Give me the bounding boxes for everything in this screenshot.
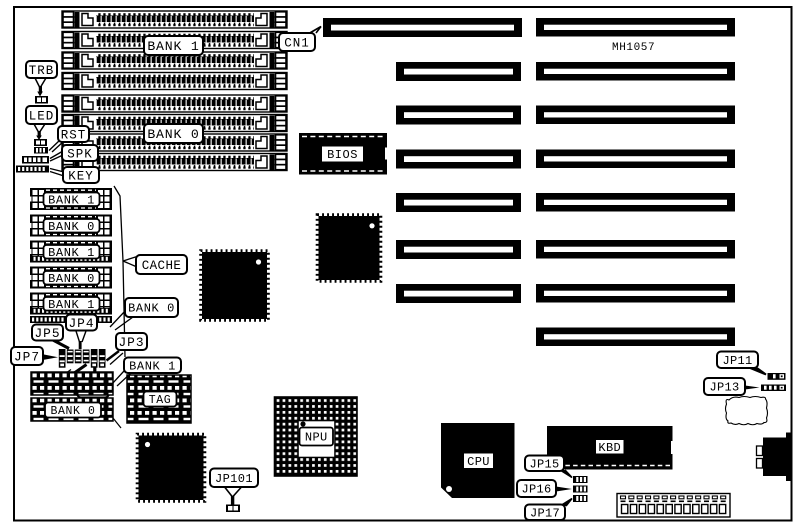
svg-text:CN1: CN1 xyxy=(284,36,310,50)
svg-text:TRB: TRB xyxy=(29,64,55,78)
svg-text:JP17: JP17 xyxy=(530,506,560,520)
svg-text:BANK 1: BANK 1 xyxy=(147,39,199,54)
svg-text:RST: RST xyxy=(61,128,87,142)
svg-text:SPK: SPK xyxy=(67,147,93,161)
svg-text:JP5: JP5 xyxy=(34,326,60,341)
svg-text:JP3: JP3 xyxy=(118,335,144,350)
svg-text:BANK 0: BANK 0 xyxy=(147,127,199,142)
svg-text:JP16: JP16 xyxy=(521,483,551,497)
svg-text:MH1057: MH1057 xyxy=(612,42,655,54)
svg-text:BIOS: BIOS xyxy=(327,148,358,162)
svg-text:NPU: NPU xyxy=(305,431,328,445)
svg-text:BANK 1: BANK 1 xyxy=(48,298,95,312)
svg-text:TAG: TAG xyxy=(149,394,172,407)
svg-text:JP101: JP101 xyxy=(215,472,253,486)
svg-text:LED: LED xyxy=(29,109,55,123)
svg-text:BANK 0: BANK 0 xyxy=(50,405,95,418)
svg-text:CPU: CPU xyxy=(467,455,490,469)
svg-text:JP4: JP4 xyxy=(68,316,94,331)
svg-text:JP15: JP15 xyxy=(529,457,559,471)
svg-text:CACHE: CACHE xyxy=(142,259,182,273)
svg-text:JP13: JP13 xyxy=(709,381,739,395)
svg-text:JP11: JP11 xyxy=(722,354,752,368)
svg-text:BANK 1: BANK 1 xyxy=(48,193,95,207)
svg-text:BANK 0: BANK 0 xyxy=(48,220,95,234)
svg-text:BANK 1: BANK 1 xyxy=(129,359,176,373)
svg-text:BANK 0: BANK 0 xyxy=(48,272,95,286)
svg-text:BANK 0: BANK 0 xyxy=(128,302,175,316)
svg-text:BANK 1: BANK 1 xyxy=(48,246,95,260)
svg-text:KEY: KEY xyxy=(68,169,94,183)
svg-text:JP7: JP7 xyxy=(14,349,40,364)
svg-text:KBD: KBD xyxy=(598,441,621,455)
